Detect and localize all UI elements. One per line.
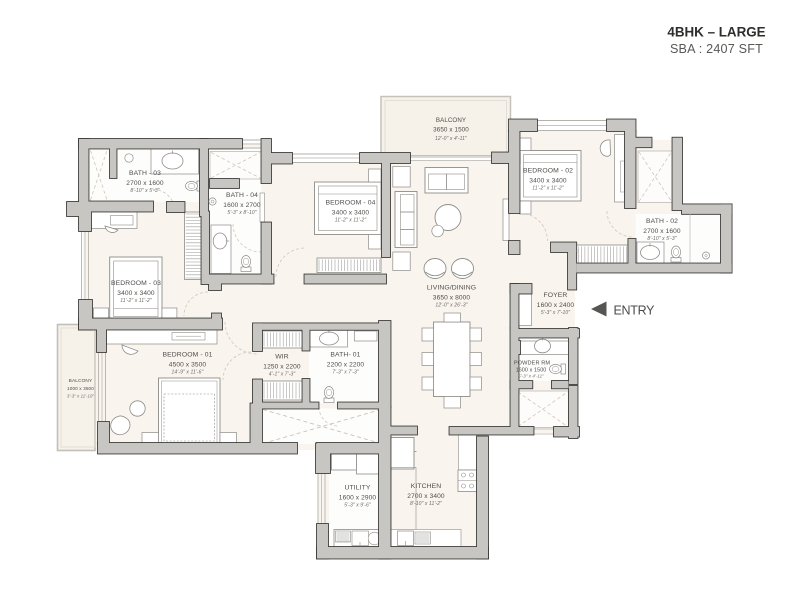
svg-text:5'-3" x 4'-11": 5'-3" x 4'-11" [518,374,544,379]
svg-text:14'-9" x 11'-6": 14'-9" x 11'-6" [172,370,204,376]
svg-text:5'-3" x 8'-10": 5'-3" x 8'-10" [227,210,256,216]
svg-text:SBA : 2407 SFT: SBA : 2407 SFT [670,42,763,56]
svg-text:KITCHEN: KITCHEN [411,483,442,490]
svg-text:3400 x 3400: 3400 x 3400 [117,290,155,297]
svg-text:4500 x 3500: 4500 x 3500 [169,362,207,369]
svg-text:5'-3" x 7'-10": 5'-3" x 7'-10" [541,310,570,316]
svg-text:12'-0" x 4'-11": 12'-0" x 4'-11" [435,136,467,142]
svg-text:2700 x 3400: 2700 x 3400 [407,493,445,500]
svg-text:11'-2" x 11'-2": 11'-2" x 11'-2" [532,186,564,192]
svg-text:8'-10" x 11'-2": 8'-10" x 11'-2" [410,501,442,507]
svg-text:12'-0" x 26'-3": 12'-0" x 26'-3" [435,303,467,309]
svg-text:1250 x 2200: 1250 x 2200 [263,364,301,371]
svg-text:ENTRY: ENTRY [614,304,656,318]
svg-text:5'-3" x 9'-6": 5'-3" x 9'-6" [344,503,371,509]
svg-text:4BHK – LARGE: 4BHK – LARGE [667,25,765,40]
svg-text:8'-10" x 5'-3": 8'-10" x 5'-3" [130,188,159,194]
svg-text:BATH - 03: BATH - 03 [129,170,161,177]
svg-text:POWDER RM: POWDER RM [514,361,551,367]
svg-text:BALCONY: BALCONY [436,117,466,124]
svg-text:FOYER: FOYER [544,292,568,299]
svg-text:7'-3" x 7'-3": 7'-3" x 7'-3" [332,370,359,376]
svg-text:BEDROOM - 02: BEDROOM - 02 [523,168,573,175]
svg-text:BATH - 02: BATH - 02 [646,218,678,225]
svg-text:3650 x 8000: 3650 x 8000 [433,295,471,302]
svg-text:BEDROOM - 01: BEDROOM - 01 [163,352,213,359]
svg-text:1000 x 3600: 1000 x 3600 [67,386,94,391]
svg-text:2200 x 2200: 2200 x 2200 [327,362,365,369]
svg-text:LIVING/DINING: LIVING/DINING [427,285,476,292]
svg-text:1600 x 2900: 1600 x 2900 [339,495,377,502]
svg-text:1600 x 2400: 1600 x 2400 [537,302,575,309]
svg-text:3650 x 1500: 3650 x 1500 [433,127,469,134]
svg-text:3'-3" x 11'-10": 3'-3" x 11'-10" [67,394,94,399]
svg-text:2700 x 1600: 2700 x 1600 [126,180,164,187]
svg-text:BEDROOM - 04: BEDROOM - 04 [326,200,376,207]
svg-text:2700 x 1600: 2700 x 1600 [643,228,681,235]
svg-text:8'-10" x 5'-3": 8'-10" x 5'-3" [647,236,676,242]
svg-text:11'-2" x 11'-2": 11'-2" x 11'-2" [335,218,367,224]
svg-text:BATH- 01: BATH- 01 [330,352,360,359]
svg-text:3400 x 3400: 3400 x 3400 [332,210,370,217]
svg-text:UTILITY: UTILITY [344,485,370,492]
svg-text:BATH - 04: BATH - 04 [226,192,258,199]
svg-text:BALCONY: BALCONY [69,378,93,384]
svg-text:WIR: WIR [275,354,289,361]
svg-text:4'-1" x 7'-3": 4'-1" x 7'-3" [269,372,296,378]
svg-text:11'-2" x 11'-2": 11'-2" x 11'-2" [120,298,152,304]
svg-text:1600 x 2700: 1600 x 2700 [223,202,261,209]
svg-text:BEDROOM - 03: BEDROOM - 03 [111,280,161,287]
svg-text:3400 x 3400: 3400 x 3400 [529,178,567,185]
